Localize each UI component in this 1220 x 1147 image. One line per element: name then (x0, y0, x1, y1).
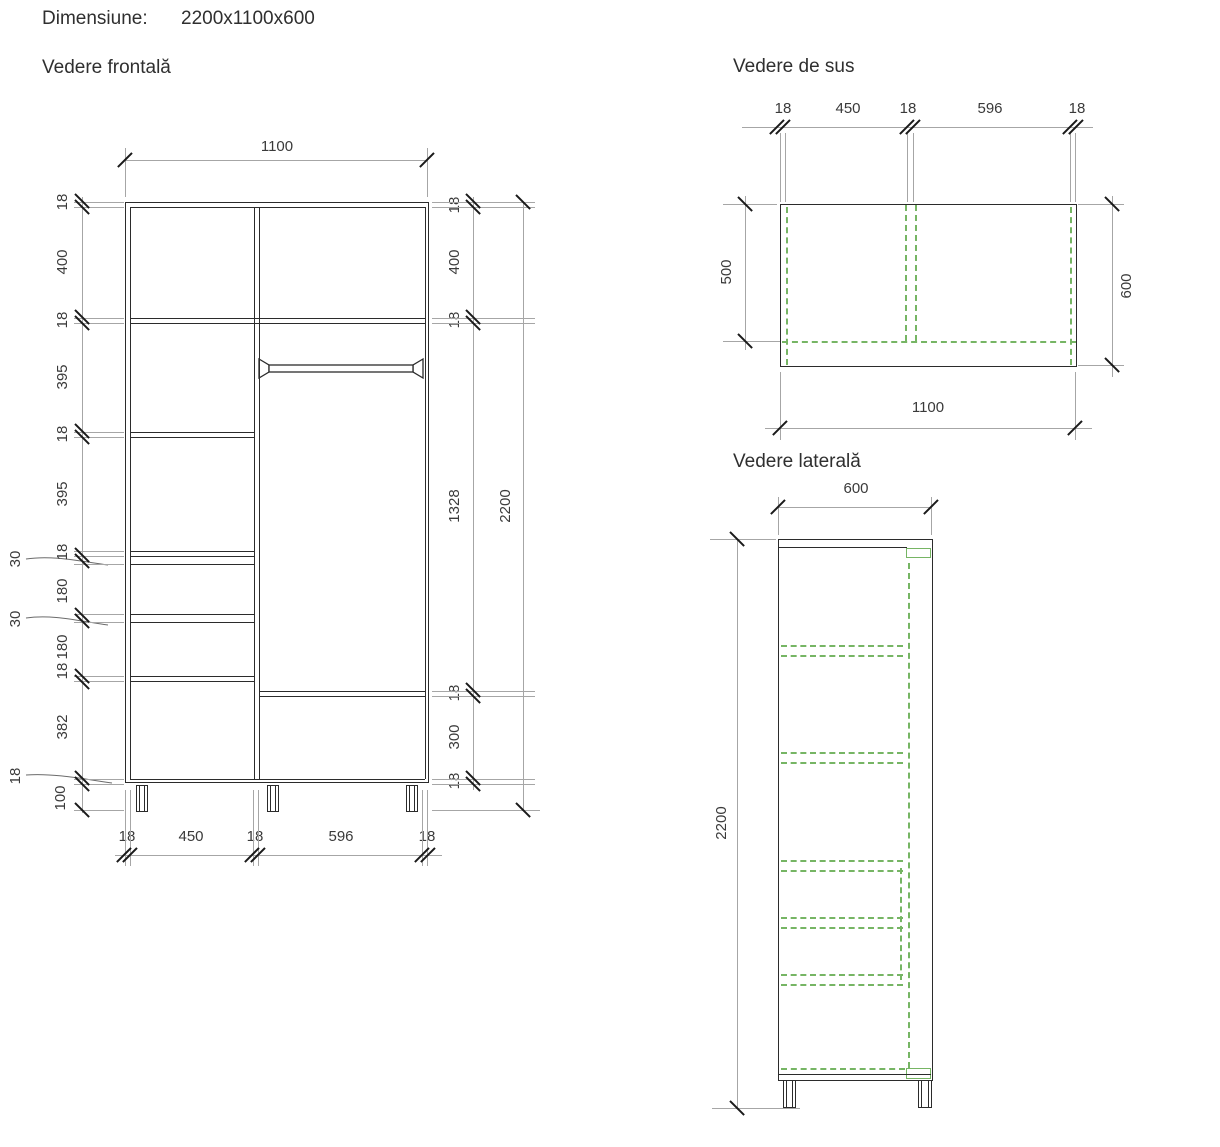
extension-line (523, 202, 524, 810)
extension-line (723, 204, 777, 205)
drawing-line (779, 1074, 931, 1075)
front-dim-right-0: 18 (445, 175, 465, 235)
extension-line (745, 196, 746, 350)
top-dim-1: 450 (818, 99, 878, 119)
hidden-partition-lines (905, 205, 917, 341)
front-dim-left-9: 18 (53, 641, 73, 701)
front-dim-left-1: 400 (53, 232, 73, 292)
top-dim-3: 596 (960, 99, 1020, 119)
drawing-line (130, 437, 254, 438)
front-dim-bottom-0: 18 (97, 827, 157, 847)
hidden-back-panel-line (908, 563, 910, 1068)
drawing-line (130, 614, 254, 615)
top-dim-0: 18 (753, 99, 813, 119)
top-dim-depth-partial: 500 (717, 242, 737, 302)
hidden-depth-line (782, 341, 1076, 343)
extension-line (432, 207, 535, 208)
top-view-title: Vedere de sus (733, 56, 854, 78)
drawing-line (130, 318, 425, 319)
extension-line (432, 202, 535, 203)
extension-line (1112, 196, 1113, 377)
extension-line (115, 855, 442, 856)
technical-drawing-canvas: Dimensiune: 2200x1100x600 Vedere frontal… (0, 0, 1220, 1147)
extension-line (1078, 365, 1124, 366)
front-dim-left-4: 18 (53, 404, 73, 464)
side-dim-depth: 600 (826, 479, 886, 499)
drawing-line (425, 207, 426, 779)
drawing-line (779, 547, 907, 548)
front-dim-bottom-2: 18 (225, 827, 285, 847)
drawing-line (259, 207, 260, 779)
front-dim-legs: 100 (51, 768, 71, 828)
front-dim-bottom-3: 596 (311, 827, 371, 847)
side-dim-height: 2200 (712, 793, 732, 853)
front-dim-left-5: 395 (53, 464, 73, 524)
extension-line (473, 197, 474, 790)
extension-line (742, 127, 1093, 128)
extension-line (82, 197, 83, 813)
extension-line (778, 507, 931, 508)
extension-line (1078, 204, 1124, 205)
front-view-title: Vedere frontală (42, 57, 171, 79)
drawing-line (130, 323, 425, 324)
drawing-line (130, 551, 254, 552)
extension-line (785, 133, 786, 202)
front-dim-left-7: 180 (53, 561, 73, 621)
hidden-shelf-3 (781, 860, 903, 872)
extension-line (913, 133, 914, 202)
hidden-shelf-2 (781, 752, 903, 764)
extension-line (931, 497, 932, 535)
extension-line (432, 323, 535, 324)
side-leg-back (918, 1080, 932, 1108)
hidden-top-back-rail (906, 548, 931, 558)
extension-line (432, 696, 535, 697)
extension-line (737, 539, 738, 1108)
drawing-line (130, 779, 425, 780)
front-dim-left-2: 18 (53, 290, 73, 350)
extension-line (723, 341, 780, 342)
extension-line (778, 497, 779, 535)
front-dim-right-2: 18 (445, 290, 465, 350)
hanging-rod (256, 356, 428, 382)
extension-line (432, 691, 535, 692)
dimension-header-label: Dimensiune: (42, 8, 148, 30)
extension-line (712, 1108, 800, 1109)
extension-line (780, 372, 781, 440)
hidden-shelf-4 (781, 917, 903, 929)
front-dim-right-6: 18 (445, 751, 465, 811)
extension-line (765, 428, 1092, 429)
extension-line (710, 539, 776, 540)
extension-line (427, 148, 428, 197)
drawing-line (130, 676, 254, 677)
front-dim-height-total: 2200 (496, 476, 516, 536)
extension-line (432, 779, 535, 780)
front-dim-left-0: 18 (53, 172, 73, 232)
hidden-shelf-5 (781, 974, 903, 986)
drawing-line (130, 207, 131, 779)
front-leg-right (406, 785, 418, 812)
extension-line (907, 133, 908, 202)
front-dim-bottom-1: 450 (161, 827, 221, 847)
dimension-header-value: 2200x1100x600 (181, 8, 315, 30)
top-dim-4: 18 (1047, 99, 1107, 119)
front-leg-left (136, 785, 148, 812)
extension-line (1075, 372, 1076, 440)
drawing-line (130, 681, 254, 682)
front-dim-right-1: 400 (445, 232, 465, 292)
drawing-line (259, 691, 425, 692)
side-leg-front (783, 1080, 796, 1108)
top-dim-depth-total: 600 (1117, 256, 1137, 316)
drawing-line (130, 207, 425, 208)
front-dim-left-3: 395 (53, 347, 73, 407)
side-view-title: Vedere laterală (733, 451, 861, 473)
hidden-bottom-line (781, 1068, 905, 1070)
front-dim-gap-bottom: 30 (6, 589, 26, 649)
front-dim-width: 1100 (247, 137, 307, 157)
front-dim-right-3: 1328 (445, 476, 465, 536)
extension-line (1070, 133, 1071, 202)
extension-line (432, 784, 535, 785)
extension-line (432, 318, 535, 319)
top-dim-2: 18 (878, 99, 938, 119)
drawing-line (259, 696, 425, 697)
drawing-line (130, 622, 254, 623)
drawing-line (130, 556, 254, 557)
hidden-shelf-1 (781, 645, 903, 657)
extension-line (125, 148, 126, 197)
drawing-line (254, 207, 255, 779)
front-dim-gap-top: 30 (6, 529, 26, 589)
front-dim-left-10: 382 (53, 697, 73, 757)
front-leg-middle (267, 785, 279, 812)
front-dim-bottom-panel: 18 (6, 746, 26, 806)
extension-line (1075, 133, 1076, 202)
drawing-line (130, 432, 254, 433)
top-dim-width-total: 1100 (898, 398, 958, 418)
extension-line (125, 160, 427, 161)
drawing-line (130, 564, 254, 565)
extension-line (780, 133, 781, 202)
